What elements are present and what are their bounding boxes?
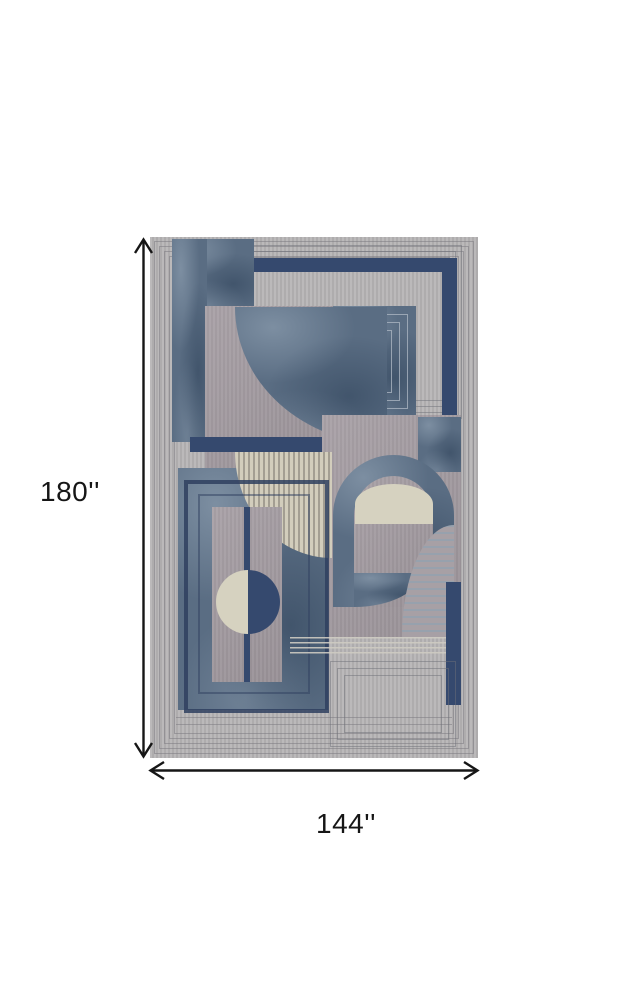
navy-top-bar — [252, 258, 457, 272]
arrowhead-right-icon — [464, 762, 478, 779]
product-dimension-diagram: 180'' 144'' — [0, 0, 630, 1000]
height-dimension-label: 180'' — [40, 478, 100, 506]
cream-half-dome — [355, 484, 433, 524]
navy-right-bar — [442, 258, 457, 415]
nested-stripe-frame — [344, 675, 442, 733]
rug-image — [150, 237, 478, 758]
width-dimension-label: 144'' — [316, 810, 376, 838]
ladder-lines — [290, 637, 454, 654]
velvet-left-band — [172, 239, 207, 442]
navy-middle-bar — [190, 437, 322, 452]
arrowhead-left-icon — [151, 762, 165, 779]
